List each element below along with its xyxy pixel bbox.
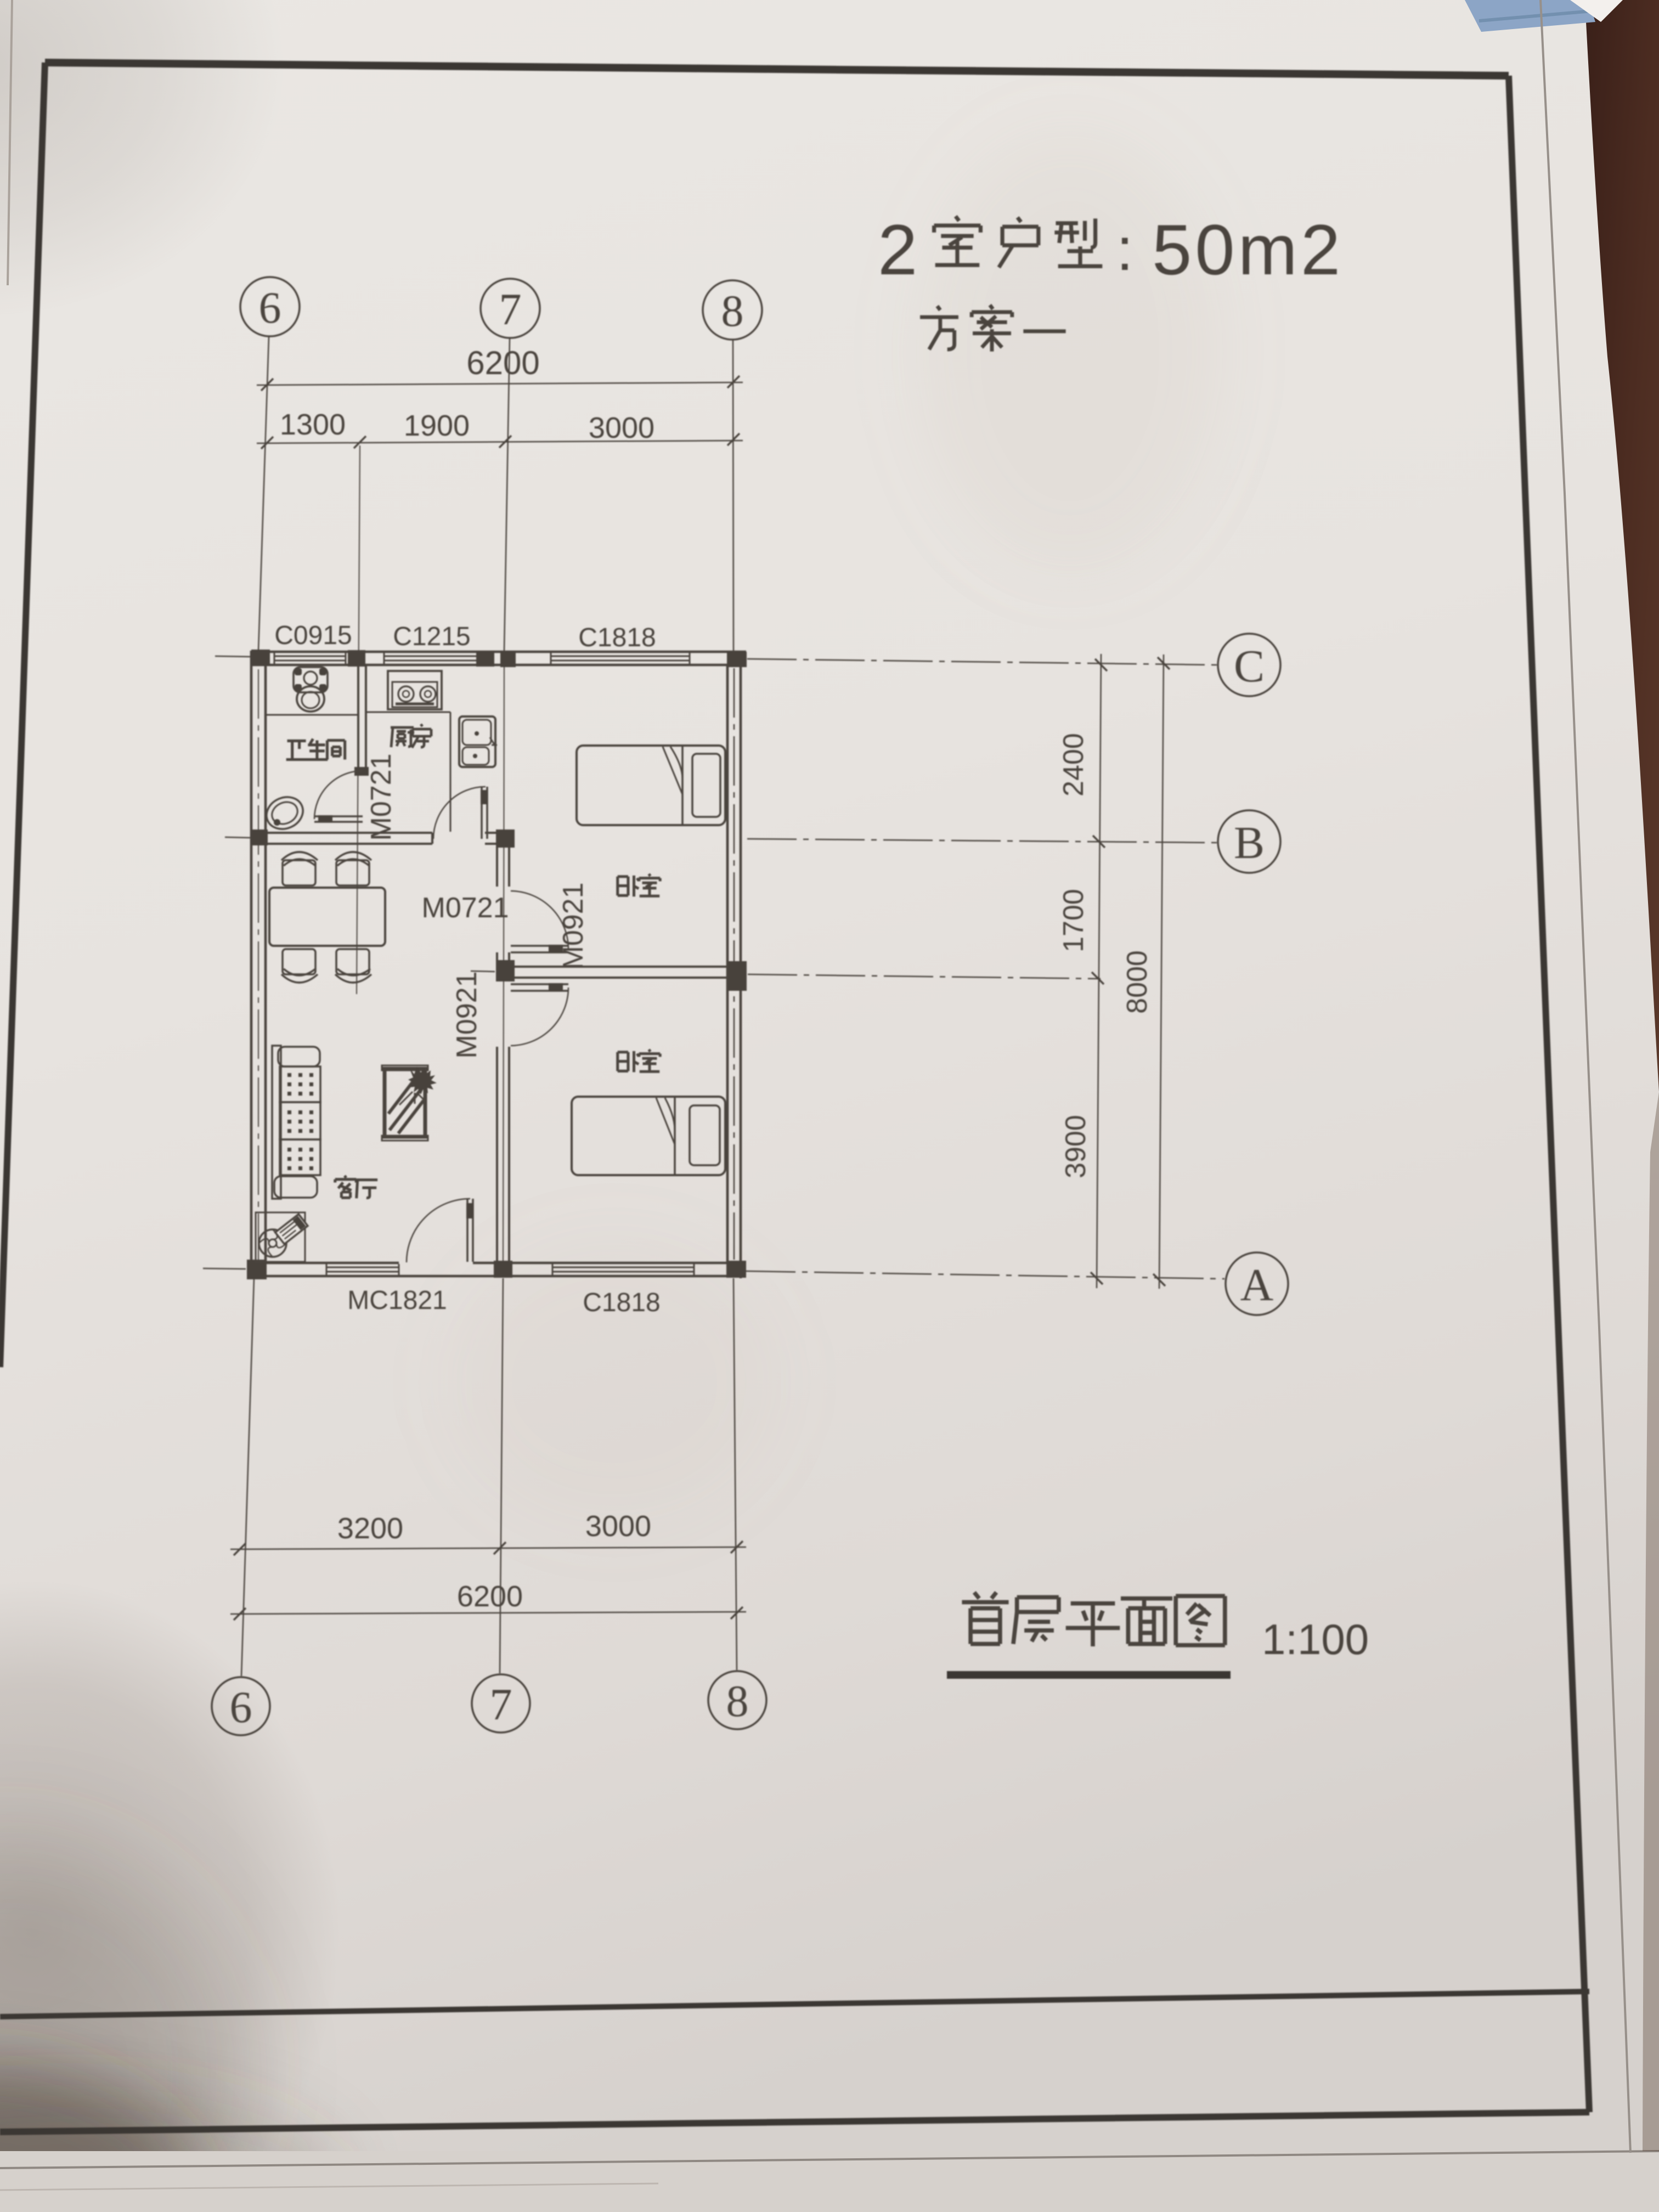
svg-text:1300: 1300 (280, 408, 346, 441)
svg-text:7: 7 (490, 1679, 512, 1729)
svg-text:1700: 1700 (1058, 889, 1090, 952)
svg-text:7: 7 (499, 284, 522, 334)
svg-text:M0721: M0721 (422, 892, 509, 924)
svg-text:M0921: M0921 (557, 883, 589, 970)
svg-text:50m2: 50m2 (1152, 210, 1344, 290)
svg-text:MC1821: MC1821 (347, 1286, 447, 1315)
svg-text:B: B (1234, 817, 1265, 868)
svg-text:8: 8 (726, 1676, 749, 1726)
svg-text:C1818: C1818 (583, 1288, 660, 1317)
svg-text:C1215: C1215 (393, 622, 470, 651)
svg-text:C0915: C0915 (274, 621, 352, 650)
svg-text:M0721: M0721 (365, 754, 397, 841)
svg-text:3900: 3900 (1060, 1115, 1092, 1178)
svg-text:6: 6 (259, 283, 281, 332)
svg-text:2400: 2400 (1058, 733, 1090, 797)
svg-text:1:100: 1:100 (1262, 1615, 1369, 1663)
svg-text:3000: 3000 (589, 411, 654, 444)
svg-text:3200: 3200 (337, 1512, 403, 1545)
svg-text:6200: 6200 (466, 345, 539, 381)
svg-text:2: 2 (878, 210, 917, 290)
svg-text:8: 8 (721, 286, 744, 336)
svg-text:6200: 6200 (457, 1580, 523, 1613)
svg-text:C: C (1234, 641, 1265, 692)
svg-text:C1818: C1818 (578, 623, 656, 652)
svg-text:3000: 3000 (585, 1510, 651, 1543)
svg-text::: : (1116, 216, 1133, 283)
svg-text:6: 6 (230, 1682, 252, 1732)
svg-text:8000: 8000 (1121, 950, 1153, 1014)
svg-text:1900: 1900 (404, 409, 470, 442)
svg-text:A: A (1240, 1260, 1274, 1311)
svg-text:M0921: M0921 (451, 972, 483, 1059)
